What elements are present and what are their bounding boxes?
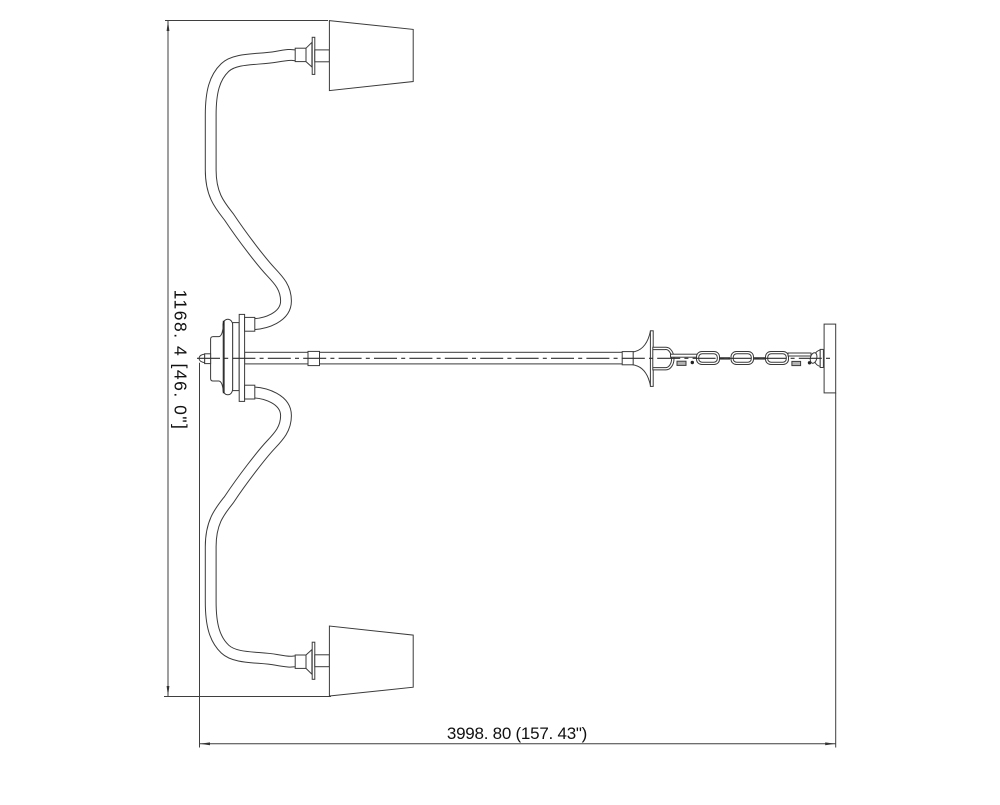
- svg-text:1168. 4 [46. 0"]: 1168. 4 [46. 0"]: [171, 290, 191, 431]
- svg-text:3998. 80 (157. 43"): 3998. 80 (157. 43"): [447, 724, 587, 743]
